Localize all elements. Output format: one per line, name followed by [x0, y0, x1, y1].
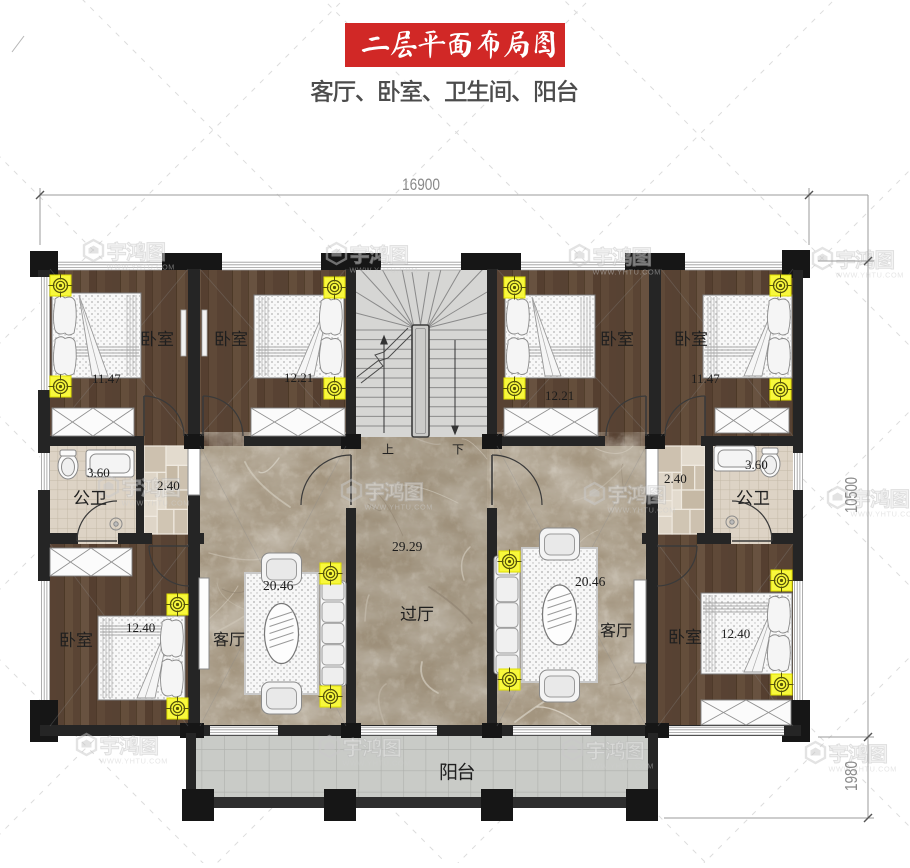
svg-text:WWW.YHTU.COM: WWW.YHTU.COM [350, 266, 418, 275]
svg-text:WWW.YHTU.COM: WWW.YHTU.COM [107, 263, 175, 272]
svg-text:WWW.YHTU.COM: WWW.YHTU.COM [608, 506, 676, 515]
svg-text:2.40: 2.40 [157, 478, 180, 493]
svg-text:WWW.YHTU.COM: WWW.YHTU.COM [593, 268, 661, 277]
svg-text:12.40: 12.40 [721, 626, 750, 641]
svg-text:12.21: 12.21 [545, 388, 574, 403]
svg-text:16900: 16900 [402, 176, 440, 194]
svg-text:3.60: 3.60 [87, 465, 110, 480]
svg-text:29.29: 29.29 [392, 539, 423, 554]
svg-text:WWW.YHTU.COM: WWW.YHTU.COM [122, 499, 190, 508]
svg-text:10500: 10500 [841, 477, 861, 513]
svg-text:WWW.YHTU.COM: WWW.YHTU.COM [836, 271, 904, 280]
svg-text:2.40: 2.40 [664, 471, 687, 486]
svg-text:12.21: 12.21 [284, 370, 313, 385]
svg-text:12.40: 12.40 [126, 620, 155, 635]
svg-text:3.60: 3.60 [745, 457, 768, 472]
svg-text:WWW.YHTU.COM: WWW.YHTU.COM [365, 503, 433, 512]
svg-text:1980: 1980 [841, 761, 861, 791]
svg-text:WWW.YHTU.COM: WWW.YHTU.COM [586, 762, 654, 771]
svg-text:WWW.YHTU.COM: WWW.YHTU.COM [829, 765, 897, 774]
svg-text:20.46: 20.46 [575, 574, 606, 589]
svg-text:WWW.YHTU.COM: WWW.YHTU.COM [343, 759, 411, 768]
svg-text:11.47: 11.47 [92, 371, 121, 386]
svg-text:11.47: 11.47 [691, 371, 720, 386]
svg-text:WWW.YHTU.COM: WWW.YHTU.COM [100, 757, 168, 766]
svg-text:20.46: 20.46 [263, 578, 294, 593]
